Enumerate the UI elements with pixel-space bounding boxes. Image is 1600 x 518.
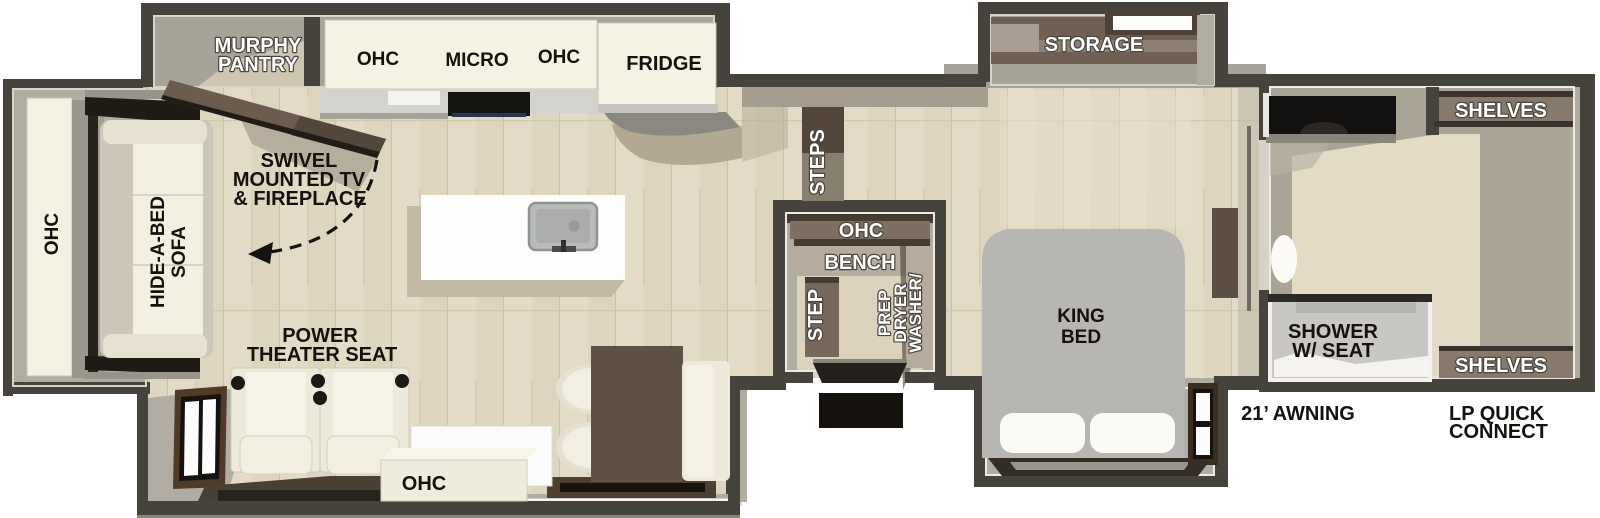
svg-text:SHELVES: SHELVES [1455,355,1547,377]
svg-text:HIDE-A-BED: HIDE-A-BED [148,196,169,308]
svg-text:OHC: OHC [42,213,63,256]
svg-text:BENCH: BENCH [824,252,895,274]
svg-text:SHELVES: SHELVES [1455,100,1547,122]
svg-text:OHC: OHC [538,47,581,68]
svg-text:PREP: PREP [875,290,894,336]
svg-text:FRIDGE: FRIDGE [626,53,702,75]
svg-text:KING: KING [1057,306,1105,327]
svg-text:BED: BED [1061,327,1101,348]
svg-text:MICRO: MICRO [445,50,508,71]
svg-text:SOFA: SOFA [169,226,190,278]
svg-text:PANTRY: PANTRY [218,54,299,76]
svg-text:W/ SEAT: W/ SEAT [1292,340,1374,362]
svg-text:OHC: OHC [839,220,883,242]
svg-text:STORAGE: STORAGE [1045,34,1144,56]
svg-text:OHC: OHC [402,473,446,495]
svg-text:& FIREPLACE: & FIREPLACE [233,188,366,210]
svg-text:THEATER SEAT: THEATER SEAT [247,344,397,366]
svg-text:STEPS: STEPS [807,129,829,195]
svg-text:STEP: STEP [805,289,827,341]
svg-text:CONNECT: CONNECT [1449,421,1548,443]
svg-text:OHC: OHC [357,49,400,70]
svg-text:21’ AWNING: 21’ AWNING [1241,403,1355,425]
